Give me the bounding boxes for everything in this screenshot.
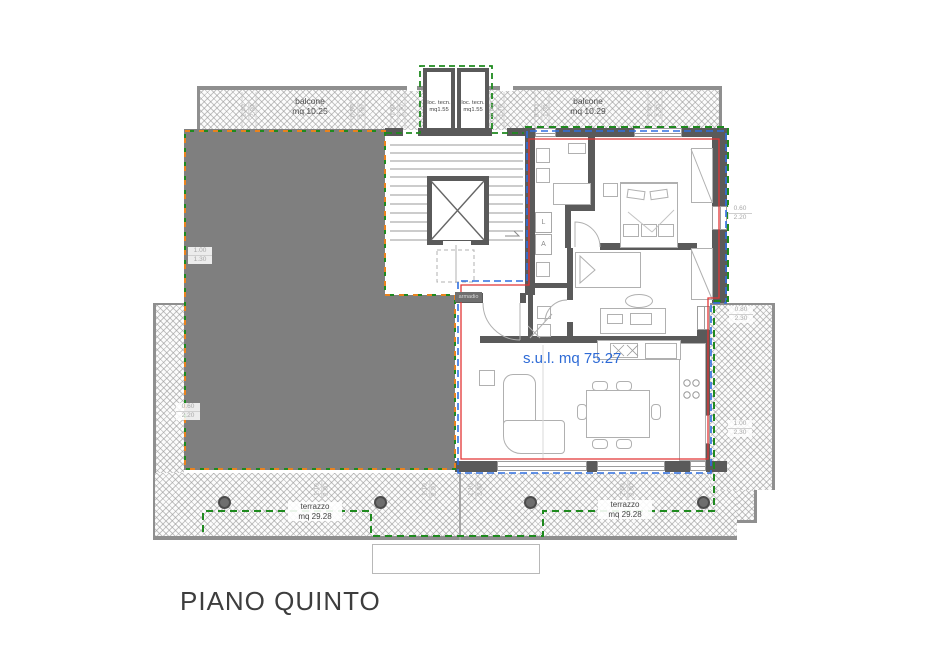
terrace-right-name: terrazzo — [598, 500, 652, 510]
dimension-label: 1.102.30 — [421, 479, 438, 501]
balcony-left-area: mq 10.25 — [280, 106, 340, 116]
terrace-right-label: terrazzo mq 29.28 — [598, 500, 652, 519]
wall-segment — [712, 230, 727, 303]
elevator-shaft — [427, 176, 489, 245]
door-arc — [575, 222, 600, 247]
side-table — [479, 370, 495, 386]
window — [690, 461, 706, 471]
dimension-label: 1.001.30 — [188, 247, 212, 264]
balcony-left-name: balcone — [280, 96, 340, 106]
washer-label: L — [542, 219, 546, 226]
adjacent-unit-mass — [184, 129, 385, 470]
wall-segment — [567, 288, 573, 300]
nightstand — [603, 183, 618, 197]
stair-direction-arrow — [505, 231, 519, 236]
chair — [651, 404, 661, 420]
desk-keyboard — [630, 313, 652, 325]
tech-room-right-area: mq1.55 — [457, 107, 489, 114]
wall-segment — [455, 461, 497, 472]
wall-segment — [567, 248, 573, 283]
window — [697, 306, 710, 330]
entry-closet-label: armadio — [455, 292, 482, 302]
wall-segment — [520, 293, 526, 303]
balcony-right-label: balcone mq 10.29 — [558, 96, 618, 116]
balcony-right-area: mq 10.29 — [558, 106, 618, 116]
dimension-label: 1.102.30 — [467, 479, 484, 501]
dimension-label: 1.402.30 — [646, 100, 663, 122]
window — [535, 128, 556, 137]
window — [712, 206, 727, 230]
adjacent-unit-mass — [385, 295, 455, 470]
dimension-label: 0.802.30 — [729, 306, 753, 323]
chair — [592, 381, 608, 391]
dimension-label: 1.102.30 — [313, 479, 330, 501]
balcony-right-name: balcone — [558, 96, 618, 106]
dimension-label: 0.602.20 — [176, 403, 200, 420]
wall-segment — [587, 461, 597, 472]
tech-room-right-name: loc. tecn. — [457, 100, 489, 107]
balcony-left-label: balcone mq 10.25 — [280, 96, 340, 116]
chair — [616, 439, 632, 449]
wall-segment — [525, 137, 535, 295]
closet-shelf — [536, 168, 550, 183]
wall-segment — [665, 461, 690, 472]
chair — [577, 404, 587, 420]
sofa — [503, 420, 565, 454]
terrace-left-area: mq 29.28 — [288, 512, 342, 522]
closet-shelf — [536, 148, 550, 163]
wall-segment — [418, 128, 492, 136]
wall-segment — [507, 128, 525, 136]
single-bed — [575, 252, 641, 288]
dimension-label: 2.502.30 — [619, 479, 636, 501]
page-title: PIANO QUINTO — [180, 586, 381, 617]
bed-cushion — [658, 224, 674, 237]
tech-room-left-name: loc. tecn. — [423, 100, 455, 107]
railing-gap — [407, 86, 417, 91]
column — [218, 496, 231, 509]
wardrobe — [691, 248, 713, 300]
kitchen-counter — [679, 343, 706, 461]
dimension-label: 1.002.30 — [728, 420, 752, 437]
column — [524, 496, 537, 509]
railing-gap — [500, 86, 513, 91]
dimension-label: 0.501.80 — [349, 100, 366, 122]
tech-room-left-area: mq1.55 — [423, 107, 455, 114]
window — [597, 461, 665, 471]
terrace-left-name: terrazzo — [288, 502, 342, 512]
window — [634, 128, 682, 137]
oven — [645, 343, 677, 359]
toilet — [537, 306, 551, 319]
wall-segment — [682, 128, 727, 137]
desk-monitor — [607, 314, 623, 324]
dimension-label: 0.601.70 — [488, 100, 505, 122]
dimension-label: 0.601.30 — [389, 100, 406, 122]
terrace-left-label: terrazzo mq 29.28 — [288, 502, 342, 521]
wardrobe — [691, 148, 713, 203]
tech-room-left-label: loc. tecn. mq1.55 — [423, 100, 455, 114]
lower-floor-outline — [372, 544, 540, 574]
wall-segment — [385, 128, 403, 136]
terrace-divider — [459, 473, 461, 540]
closet-shelf — [568, 143, 586, 154]
wall-segment — [712, 137, 727, 206]
chair — [616, 381, 632, 391]
dining-table — [586, 390, 650, 438]
unit-area-label: s.u.l. mq 75.27 — [523, 350, 621, 367]
door-arc — [483, 303, 520, 340]
terrace-right-area: mq 29.28 — [598, 510, 652, 520]
dimension-label: 0.602.20 — [728, 205, 752, 222]
chair — [592, 439, 608, 449]
washer-box: L — [535, 212, 552, 233]
dryer-label: A — [541, 241, 546, 248]
bidet — [537, 324, 551, 337]
dimension-label: 0.501.30 — [533, 100, 550, 122]
office-chair — [625, 294, 653, 308]
cabinet — [536, 262, 550, 277]
wall-segment — [706, 461, 727, 472]
wall-segment — [556, 128, 634, 137]
closet — [553, 183, 591, 205]
dryer-box: A — [535, 234, 552, 255]
bed-cushion — [623, 224, 639, 237]
wall-segment — [525, 128, 535, 137]
dimension-label: 1.402.30 — [240, 100, 257, 122]
window — [497, 461, 587, 471]
column — [374, 496, 387, 509]
elevator-door-gap — [443, 241, 471, 246]
floor-plan-canvas: L A — [0, 0, 925, 661]
tech-room-right-label: loc. tecn. mq1.55 — [457, 100, 489, 114]
column — [697, 496, 710, 509]
bed-cushion — [641, 224, 657, 237]
wall-segment — [565, 211, 571, 248]
wall-segment — [528, 288, 533, 336]
